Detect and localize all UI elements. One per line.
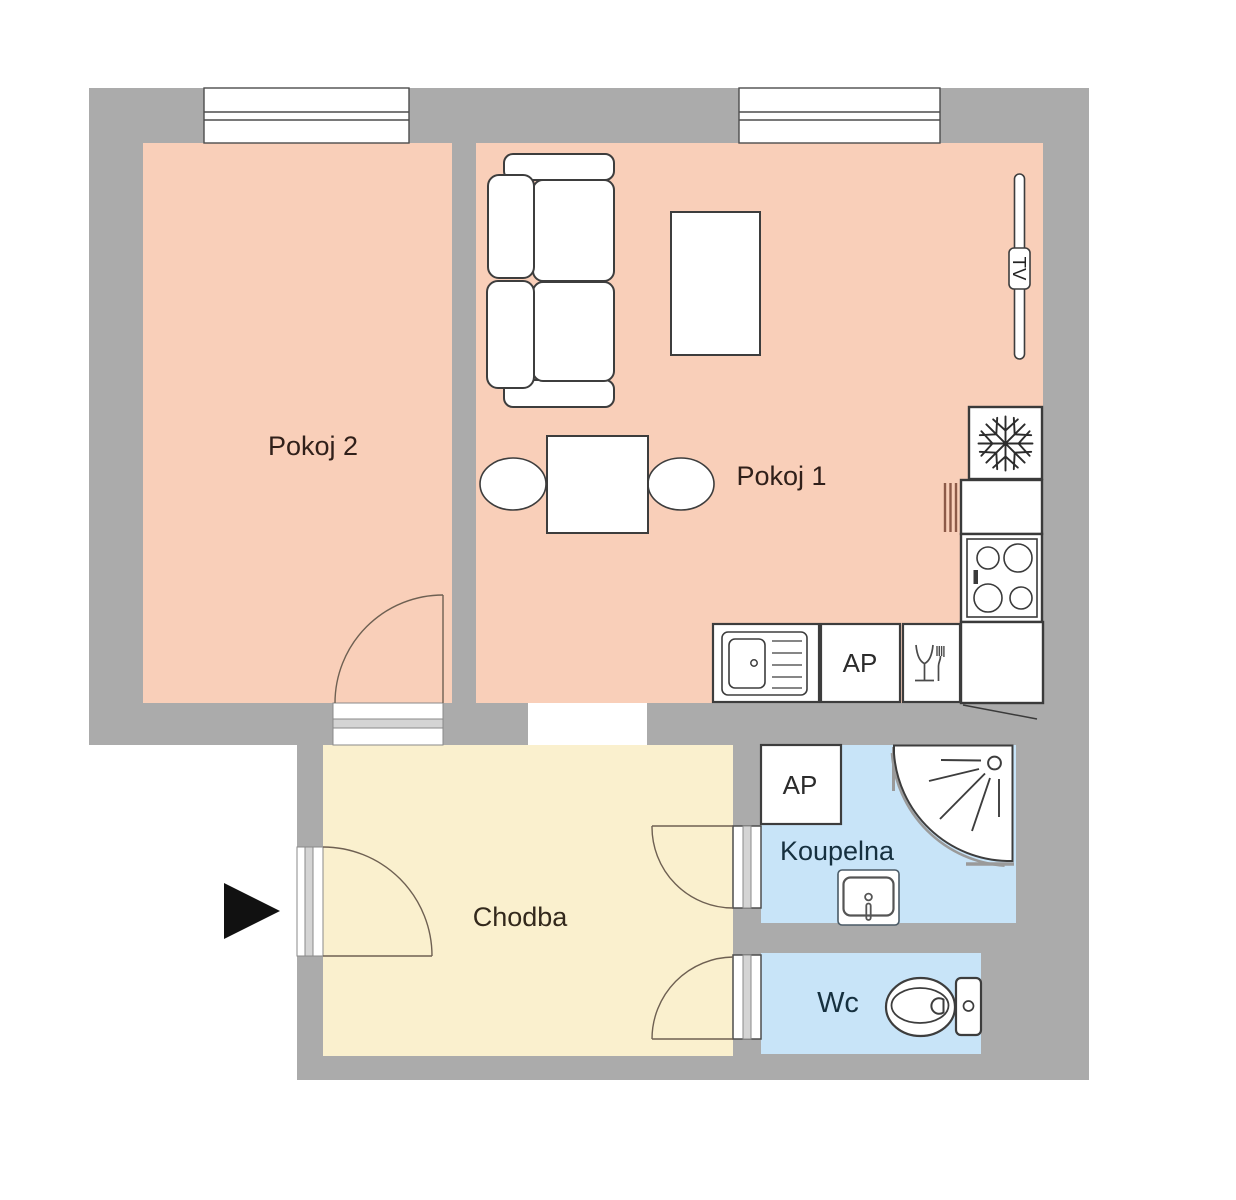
- svg-text:Wc: Wc: [817, 987, 859, 1019]
- svg-text:Pokoj 2: Pokoj 2: [268, 431, 358, 461]
- svg-text:TV: TV: [1009, 257, 1030, 281]
- svg-text:Koupelna: Koupelna: [780, 836, 895, 866]
- svg-text:AP: AP: [843, 648, 878, 678]
- svg-text:Pokoj 1: Pokoj 1: [736, 461, 826, 491]
- svg-text:Chodba: Chodba: [473, 902, 569, 932]
- svg-text:AP: AP: [783, 770, 818, 800]
